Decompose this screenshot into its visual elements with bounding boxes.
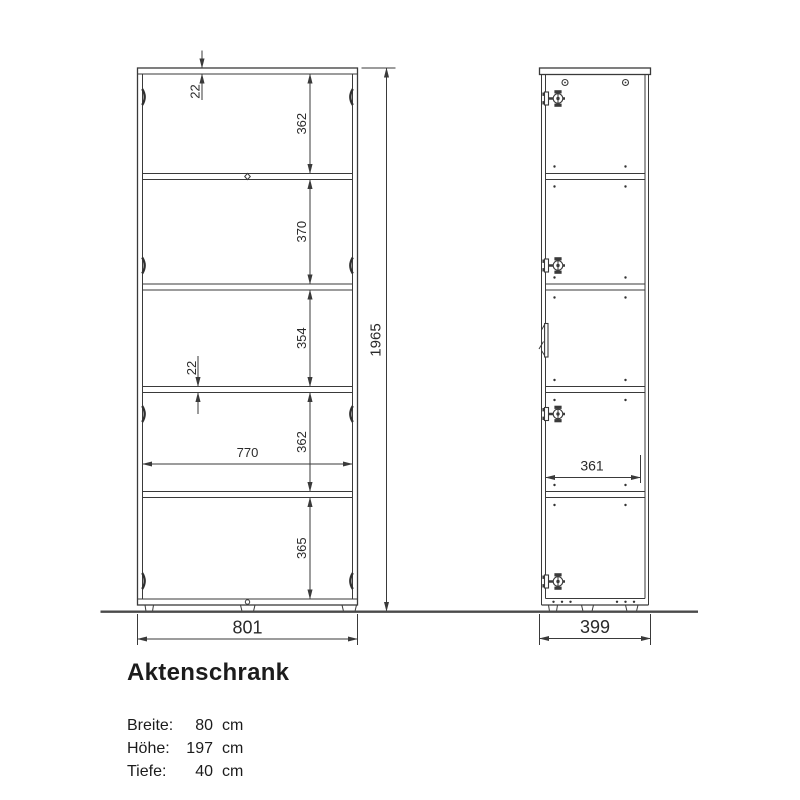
spec-row-depth: Tiefe: 40 cm — [127, 760, 243, 783]
base-fitting-holes — [552, 601, 635, 603]
spec-label: Breite: — [127, 714, 185, 737]
spec-label: Tiefe: — [127, 760, 185, 783]
dim-label-chain-2: 370 — [294, 221, 309, 243]
dim-label-overall-width: 801 — [232, 618, 262, 638]
spec-unit: cm — [222, 737, 243, 760]
front-view — [138, 68, 358, 611]
dim-overall-depth: 399 — [540, 614, 651, 645]
dim-inner-width: 770 — [143, 445, 353, 464]
screw-icon — [623, 80, 629, 86]
door-handle-profile — [539, 324, 548, 358]
dim-label-top-panel: 22 — [188, 84, 203, 98]
spec-value: 197 — [185, 737, 213, 760]
dim-chain: 362 370 354 362 365 — [294, 74, 310, 599]
screw-icon — [562, 80, 568, 86]
side-dimensions: 361 399 — [540, 455, 651, 645]
spec-label: Höhe: — [127, 737, 185, 760]
hinge-symbol — [542, 573, 565, 590]
drawing-title: Aktenschrank — [127, 659, 289, 687]
dim-label-shelf-thickness: 22 — [184, 361, 199, 375]
side-view — [539, 68, 651, 611]
dim-label-chain-4: 362 — [294, 431, 309, 453]
dim-inner-depth: 361 — [546, 455, 641, 483]
dim-label-inner-depth: 361 — [580, 458, 604, 474]
dim-top-panel-thickness: 22 — [188, 51, 203, 101]
dim-label-overall-depth: 399 — [580, 617, 610, 637]
hinge-symbol — [542, 257, 565, 274]
dim-shelf-thickness: 22 — [184, 356, 199, 414]
spec-value: 80 — [185, 714, 213, 737]
spec-list: Breite: 80 cm Höhe: 197 cm Tiefe: 40 cm — [127, 714, 243, 783]
shelf-pin-holes — [553, 165, 626, 506]
side-shelf-lines — [546, 174, 646, 498]
door-hinge-arcs — [142, 89, 353, 589]
dim-overall-height: 1965 — [362, 68, 396, 611]
front-dimensions: 22 362 370 354 362 365 22 770 — [138, 51, 396, 646]
fitting-marks — [245, 173, 251, 604]
drawing-sheet: 22 362 370 354 362 365 22 770 — [0, 0, 800, 800]
dim-label-chain-5: 365 — [294, 537, 309, 559]
hinge-symbol — [542, 90, 565, 107]
dim-label-chain-1: 362 — [294, 113, 309, 135]
spec-unit: cm — [222, 760, 243, 783]
dim-label-inner-width: 770 — [237, 445, 259, 460]
spec-row-height: Höhe: 197 cm — [127, 737, 243, 760]
front-feet — [145, 605, 357, 611]
side-feet — [549, 605, 639, 611]
spec-row-width: Breite: 80 cm — [127, 714, 243, 737]
dim-label-chain-3: 354 — [294, 327, 309, 349]
dim-overall-width: 801 — [138, 614, 358, 645]
dim-label-overall-height: 1965 — [368, 323, 385, 356]
spec-value: 40 — [185, 760, 213, 783]
hinge-symbol — [542, 406, 565, 423]
title-block: Aktenschrank — [127, 659, 289, 687]
spec-unit: cm — [222, 714, 243, 737]
cabinet-technical-drawing: 22 362 370 354 362 365 22 770 — [0, 0, 800, 800]
